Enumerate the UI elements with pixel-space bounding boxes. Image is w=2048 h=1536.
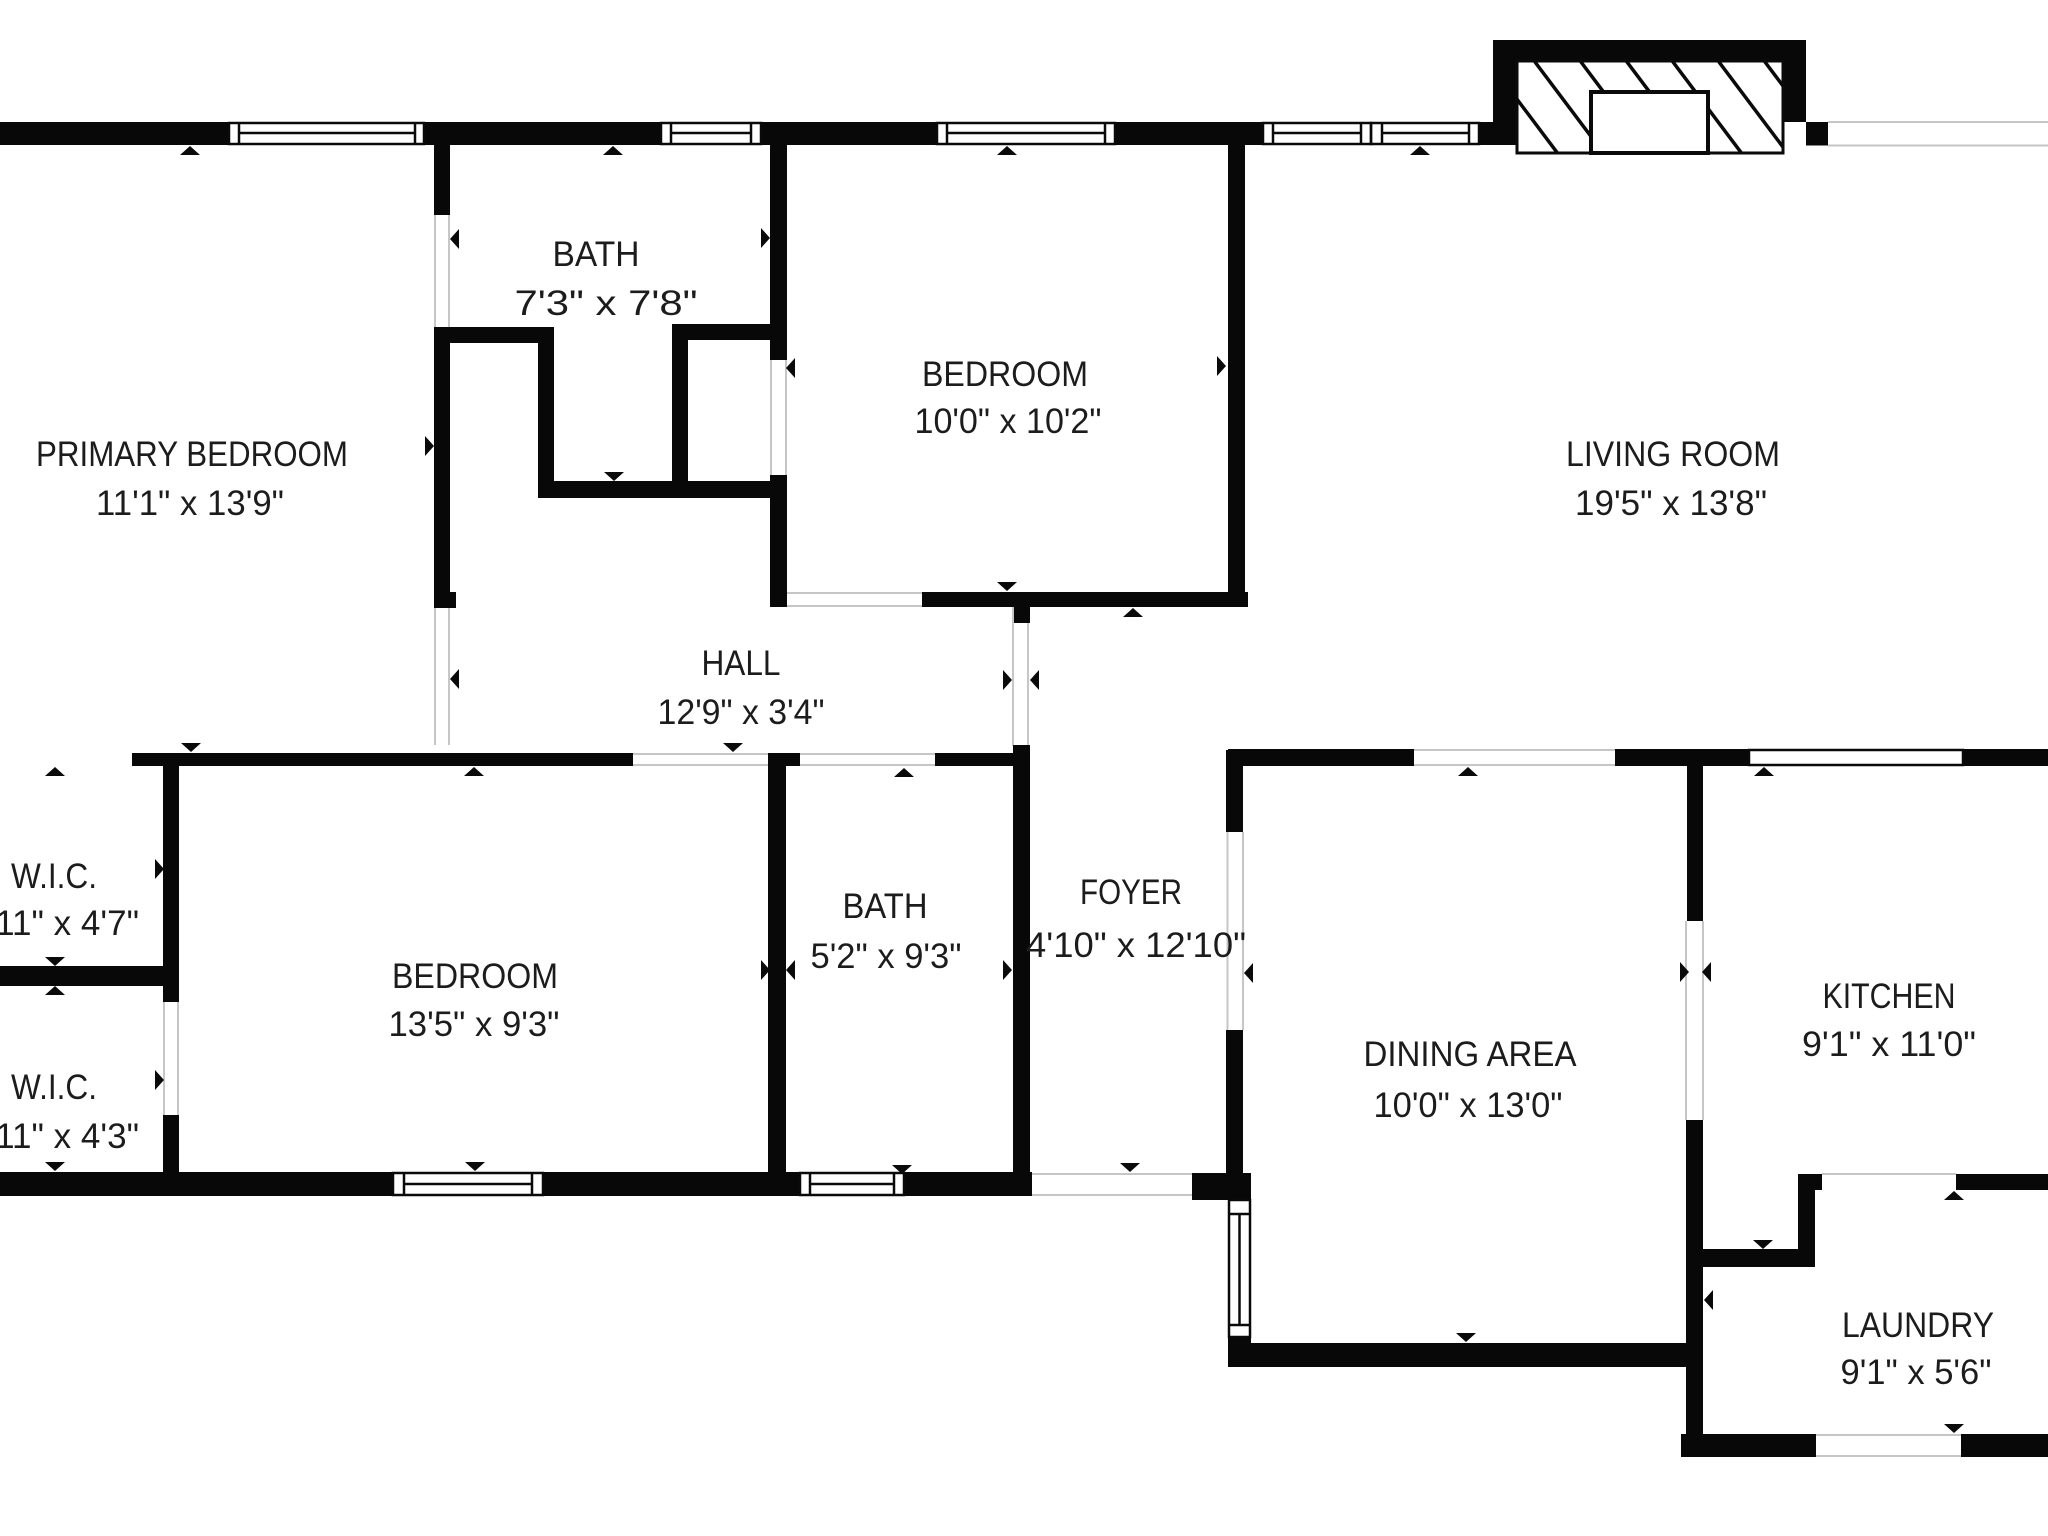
svg-text:10'0" x 13'0": 10'0" x 13'0" [1374,1086,1563,1125]
svg-text:PRIMARY BEDROOM: PRIMARY BEDROOM [36,435,348,474]
svg-text:11'1" x 13'9": 11'1" x 13'9" [96,484,284,523]
svg-text:BEDROOM: BEDROOM [922,355,1088,394]
svg-text:LIVING ROOM: LIVING ROOM [1566,435,1780,474]
svg-text:W.I.C.: W.I.C. [11,1068,97,1107]
svg-text:LAUNDRY: LAUNDRY [1842,1306,1994,1345]
svg-text:KITCHEN: KITCHEN [1823,977,1956,1016]
svg-text:10'0" x 10'2": 10'0" x 10'2" [915,402,1102,441]
svg-text:BATH: BATH [843,887,928,926]
svg-text:BATH: BATH [553,235,640,274]
svg-text:9'1" x 5'6": 9'1" x 5'6" [1841,1353,1992,1392]
svg-text:W.I.C.: W.I.C. [11,857,97,896]
svg-text:13'5" x 9'3": 13'5" x 9'3" [389,1005,560,1044]
svg-text:9'1" x 11'0": 9'1" x 11'0" [1802,1025,1976,1064]
svg-text:FOYER: FOYER [1080,873,1182,912]
svg-text:2'11" x 4'7": 2'11" x 4'7" [0,904,139,943]
svg-text:12'9" x 3'4": 12'9" x 3'4" [658,693,825,732]
svg-text:2'11" x 4'3": 2'11" x 4'3" [0,1117,139,1156]
svg-text:DINING AREA: DINING AREA [1364,1035,1578,1074]
svg-text:HALL: HALL [702,644,781,683]
svg-text:5'2" x 9'3": 5'2" x 9'3" [811,937,962,976]
svg-text:19'5" x 13'8": 19'5" x 13'8" [1575,484,1767,523]
svg-text:BEDROOM: BEDROOM [392,957,558,996]
svg-text:4'10" x 12'10": 4'10" x 12'10" [1026,926,1246,965]
svg-text:7'3" x 7'8": 7'3" x 7'8" [515,284,698,323]
